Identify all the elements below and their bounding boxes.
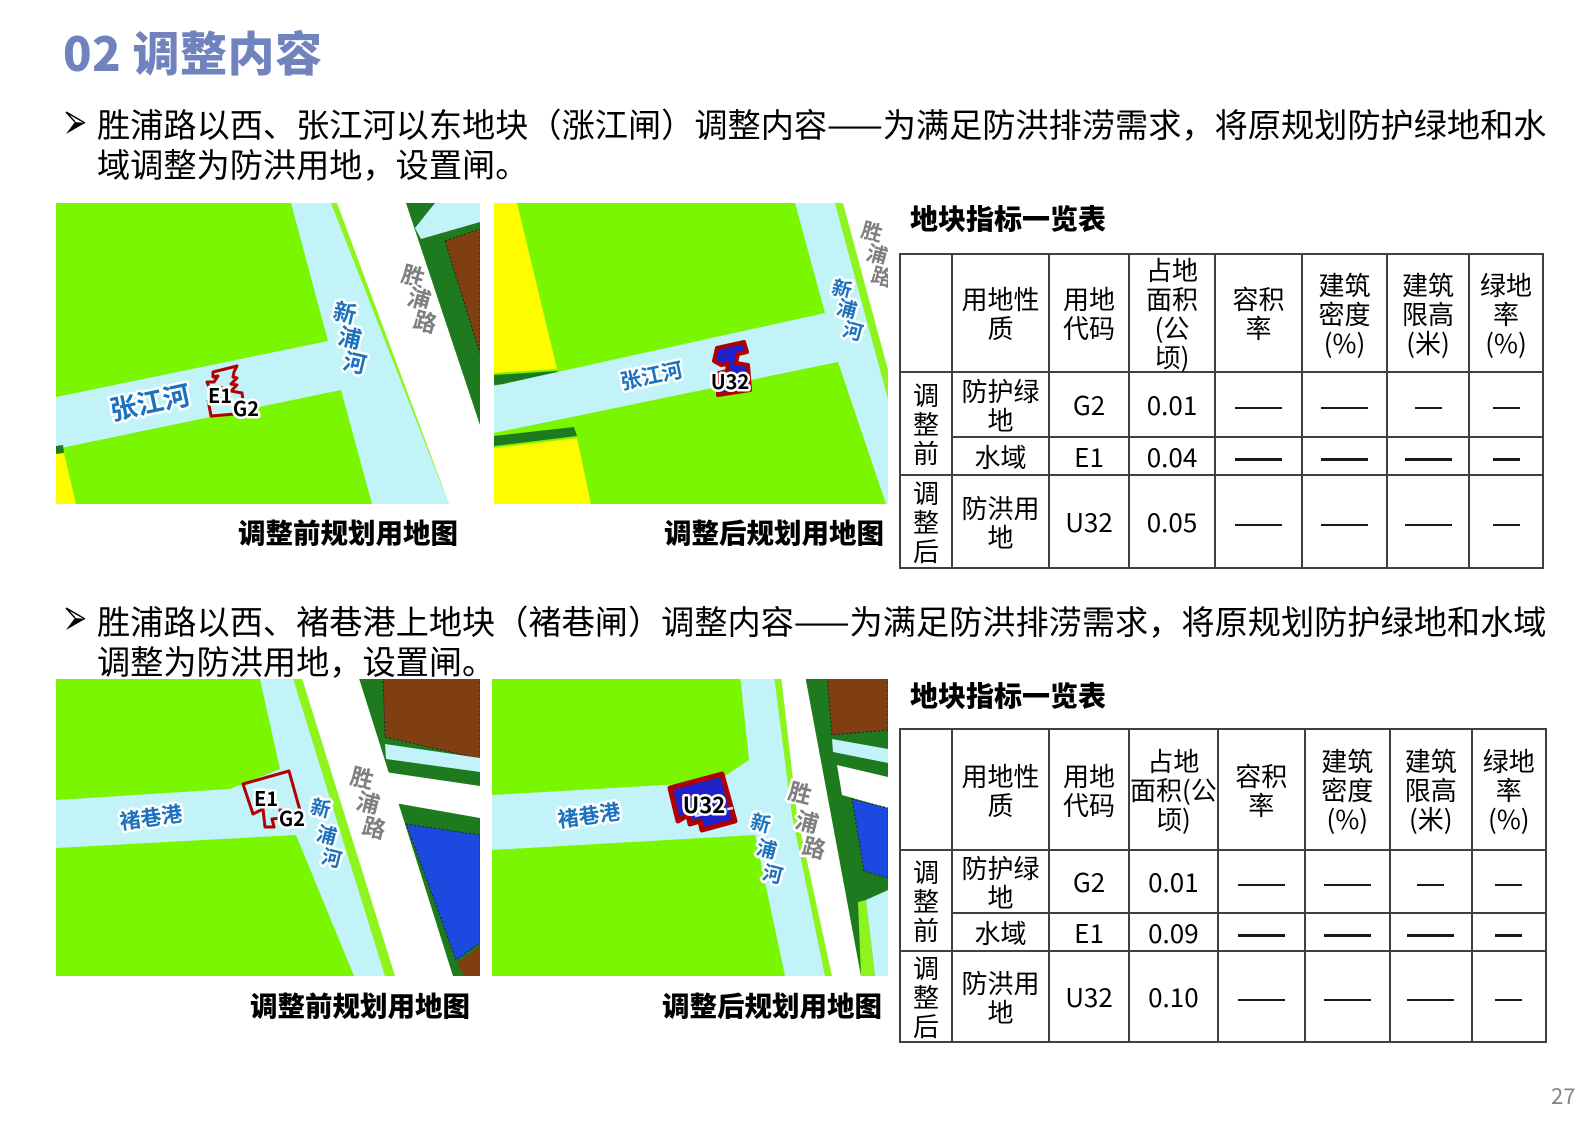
- svg-text:E1: E1: [208, 380, 232, 409]
- svg-text:U32: U32: [683, 788, 725, 820]
- svg-text:G2: G2: [279, 803, 305, 832]
- svg-text:U32: U32: [711, 366, 750, 395]
- svg-text:G2: G2: [233, 393, 259, 422]
- svg-text:E1: E1: [254, 783, 278, 812]
